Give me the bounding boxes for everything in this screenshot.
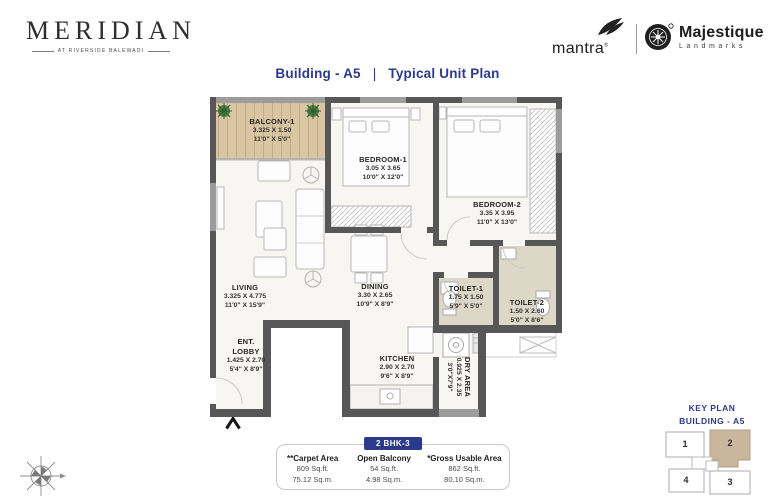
majestique-wordmark: Majestique Landmarks <box>679 24 764 50</box>
room-label-living: LIVING 3.325 X 4.775 11'0" X 15'9" <box>224 283 266 311</box>
majestique-logo: Majestique Landmarks <box>644 22 764 52</box>
key-plan-unit-4: 4 <box>683 475 688 485</box>
room-label-toilet-2: TOILET-2 1.50 X 2.60 5'0" X 8'6" <box>510 298 545 326</box>
title-divider: | <box>373 66 377 81</box>
key-plan-unit-2: 2 <box>727 438 732 448</box>
key-plan-title: KEY PLAN BUILDING - A5 <box>656 402 768 428</box>
page-title: Building - A5 | Typical Unit Plan <box>210 66 565 81</box>
plant-icon <box>305 103 321 119</box>
leaf-icon <box>596 18 626 36</box>
compass-rose-icon <box>16 452 70 499</box>
meridian-wordmark: MERIDIAN <box>26 16 176 46</box>
meridian-logo: MERIDIAN AT RIVERSIDE BALEWADI <box>26 16 176 54</box>
gross-usable-area-column: *Gross Usable Area 862 Sq.ft. 80.10 Sq.m… <box>420 454 509 485</box>
carpet-area-column: **Carpet Area 809 Sq.ft. 75.12 Sq.m. <box>277 454 348 485</box>
room-label-toilet-1: TOILET-1 1.75 X 1.50 5'9" X 5'0" <box>449 284 484 312</box>
plant-icon <box>216 103 232 119</box>
building-name: Building - A5 <box>275 66 360 81</box>
compass: N <box>16 452 70 499</box>
medallion-icon <box>644 22 674 52</box>
meridian-tagline: AT RIVERSIDE BALEWADI <box>26 48 176 54</box>
registered-mark: ® <box>604 43 608 49</box>
tagline-rule-left <box>32 51 54 52</box>
room-label-dry-area: DRY AREA 0.925 X 2.35 3'0"X7'9" <box>444 357 472 397</box>
open-balcony-column: Open Balcony 54 Sq.ft. 4.98 Sq.m. <box>348 454 419 485</box>
unit-type-badge: 2 BHK-3 <box>364 437 422 450</box>
logo-divider <box>636 24 637 54</box>
room-label-kitchen: KITCHEN 2.90 X 2.70 9'6" X 8'9" <box>380 354 415 382</box>
room-label-bedroom-1: BEDROOM-1 3.05 X 3.65 10'0" X 12'0" <box>359 155 407 183</box>
entry-arrow-icon <box>225 417 241 430</box>
key-plan-unit-1: 1 <box>682 439 687 449</box>
mantra-logo: mantra® <box>552 18 632 58</box>
page: MERIDIAN AT RIVERSIDE BALEWADI Building … <box>0 0 769 499</box>
key-plan-map: 1 2 3 4 <box>662 429 758 497</box>
area-summary-table: 2 BHK-3 **Carpet Area 809 Sq.ft. 75.12 S… <box>276 444 510 490</box>
plan-type: Typical Unit Plan <box>388 66 499 81</box>
room-label-bedroom-2: BEDROOM-2 3.35 X 3.95 11'0" X 13'0" <box>473 200 521 228</box>
key-plan-unit-3: 3 <box>727 477 732 487</box>
mantra-wordmark: mantra® <box>552 40 608 58</box>
tagline-rule-right <box>148 51 170 52</box>
room-label-dining: DINING 3.30 X 2.65 10'9" X 8'9" <box>357 282 394 310</box>
room-label-balcony-1: BALCONY-1 3.325 X 1.50 11'0" X 5'0" <box>249 117 294 145</box>
washing-machine-icon <box>443 333 469 357</box>
room-label-ent-lobby: ENT. LOBBY 1.425 X 2.70 5'4" X 8'9" <box>227 337 266 375</box>
